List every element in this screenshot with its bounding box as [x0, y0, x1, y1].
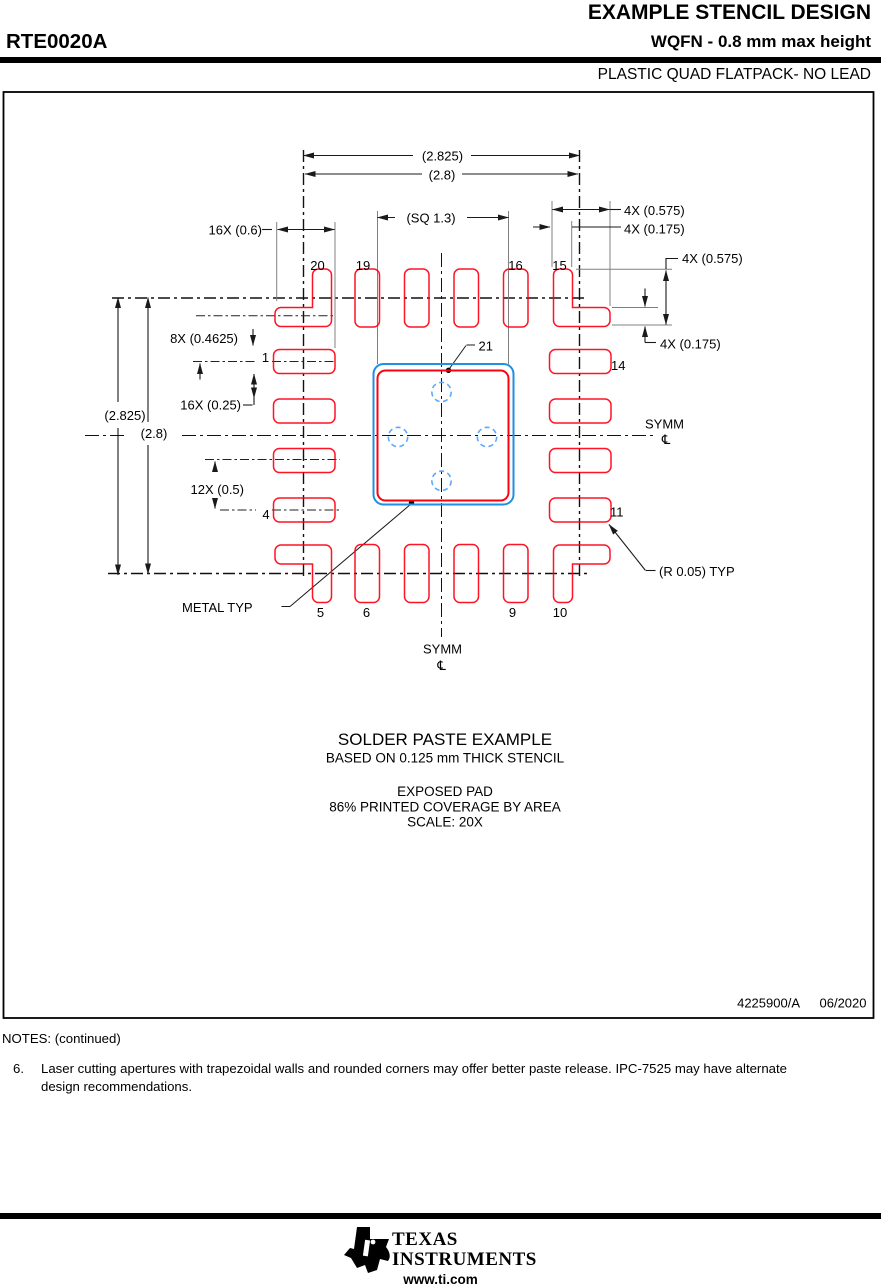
- dim-width-outer: (2.825): [422, 149, 463, 164]
- caption-line3: EXPOSED PAD: [397, 784, 493, 799]
- dim-pad-width: 16X (0.25): [180, 398, 241, 413]
- dim-corner-wid-top: 4X (0.175): [624, 222, 685, 237]
- pad-12: [550, 449, 612, 473]
- symmetry-centerlines: [85, 253, 655, 637]
- exposed-pad-metal-outline: [374, 364, 514, 505]
- stencil-drawing-figure: (2.825) (2.8) (SQ 1.3) 16X (0.6) 4X (0.5…: [0, 0, 881, 1288]
- pad-11: [550, 498, 612, 522]
- dim-width-inner: (2.8): [429, 168, 456, 183]
- ti-logo: TEXAS INSTRUMENTS: [343, 1225, 543, 1277]
- pin-label-16: 16: [508, 258, 522, 273]
- symm-label-right: SYMM: [645, 417, 684, 432]
- pad-14: [550, 350, 612, 374]
- dim-pad-pitch: 12X (0.5): [191, 482, 244, 497]
- caption-subtitle: BASED ON 0.125 mm THICK STENCIL: [326, 751, 565, 766]
- caption-line4: 86% PRINTED COVERAGE BY AREA: [329, 800, 561, 815]
- note-item-line1: Laser cutting apertures with trapezoidal…: [41, 1061, 787, 1076]
- dim-corner-wid-right: 4X (0.175): [660, 337, 721, 352]
- figure-border: [4, 92, 874, 1018]
- pad-3: [274, 449, 336, 473]
- pin-label-1: 1: [262, 350, 269, 365]
- symm-label-bottom: SYMM: [423, 642, 462, 657]
- pin-label-20: 20: [310, 258, 324, 273]
- document-date: 06/2020: [820, 996, 867, 1011]
- dim-height-outer: (2.825): [104, 408, 145, 423]
- document-number: 4225900/A: [737, 996, 800, 1011]
- brand-name-top: TEXAS: [392, 1229, 458, 1250]
- dim-row-offset: 8X (0.4625): [170, 331, 238, 346]
- caption-line5: SCALE: 20X: [407, 815, 483, 830]
- via-circle: [477, 427, 496, 446]
- datasheet-page: EXAMPLE STENCIL DESIGN RTE0020A WQFN - 0…: [0, 0, 881, 1288]
- texas-state-icon: [344, 1227, 390, 1273]
- dimension-labels: (2.825) (2.8) (SQ 1.3) 16X (0.6) 4X (0.5…: [104, 149, 742, 675]
- footer-rule: [0, 1213, 881, 1219]
- notes-heading: NOTES: (continued): [2, 1031, 121, 1046]
- pin-numbers: 20 19 16 15 1 4 5 6 9 10 14 11 21: [262, 258, 626, 620]
- pin-label-5: 5: [317, 605, 324, 620]
- via-circle: [388, 427, 407, 446]
- note-item-number: 6.: [13, 1061, 24, 1076]
- pin-label-14: 14: [611, 358, 625, 373]
- centerline-symbol-bottom: ℄: [436, 659, 446, 674]
- dim-corner-len-right: 4X (0.575): [682, 251, 743, 266]
- dimension-lines: [118, 156, 678, 576]
- website-url: www.ti.com: [0, 1272, 881, 1287]
- exposed-pad: [374, 364, 514, 505]
- pad-13: [550, 399, 612, 423]
- pin-label-6: 6: [363, 605, 370, 620]
- pin-label-21: 21: [479, 339, 493, 354]
- dim-pad-length: 16X (0.6): [209, 223, 262, 238]
- dim-center-pad: (SQ 1.3): [406, 211, 455, 226]
- figure-caption: SOLDER PASTE EXAMPLE BASED ON 0.125 mm T…: [326, 730, 565, 830]
- dim-corner-len-top: 4X (0.575): [624, 203, 685, 218]
- pin-label-15: 15: [552, 258, 566, 273]
- extension-lines: [277, 201, 672, 364]
- metal-typ-label: METAL TYP: [182, 600, 253, 615]
- dim-height-inner: (2.8): [141, 426, 168, 441]
- pin-label-9: 9: [509, 605, 516, 620]
- package-outline: [108, 150, 587, 578]
- pin-label-4: 4: [262, 507, 269, 522]
- pad-2: [274, 399, 336, 423]
- centerline-symbol-right: ℄: [661, 433, 671, 448]
- pin-label-19: 19: [356, 258, 370, 273]
- brand-name-bottom: INSTRUMENTS: [392, 1249, 537, 1270]
- caption-title: SOLDER PASTE EXAMPLE: [338, 730, 552, 749]
- pin-label-11: 11: [610, 505, 624, 520]
- note-item-line2: design recommendations.: [41, 1079, 192, 1094]
- radius-typ-label: (R 0.05) TYP: [659, 564, 735, 579]
- pin-label-10: 10: [553, 605, 567, 620]
